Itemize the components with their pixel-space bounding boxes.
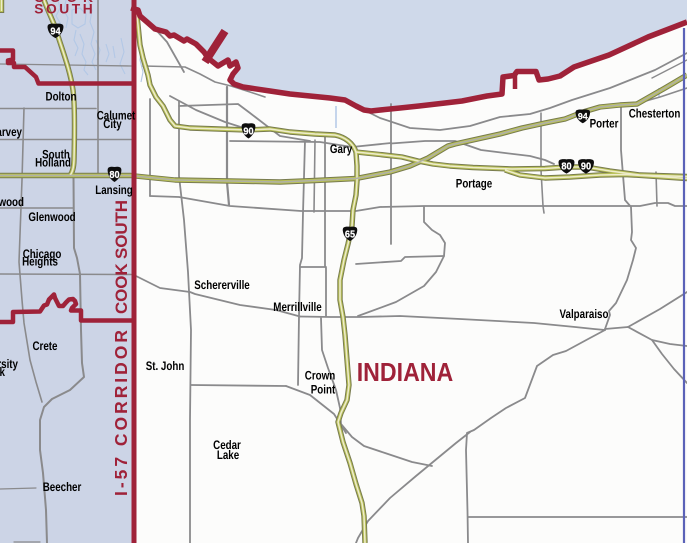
- svg-text:Homewood: Homewood: [0, 196, 24, 209]
- svg-text:Gary: Gary: [330, 143, 353, 156]
- svg-text:Harvey: Harvey: [0, 126, 23, 139]
- svg-text:90: 90: [581, 162, 592, 173]
- svg-text:Dolton: Dolton: [46, 91, 77, 104]
- svg-text:Crown: Crown: [305, 370, 336, 383]
- svg-text:Crete: Crete: [32, 340, 57, 353]
- svg-text:Valparaiso: Valparaiso: [560, 308, 609, 321]
- svg-text:Glenwood: Glenwood: [28, 211, 75, 224]
- svg-text:94: 94: [578, 111, 589, 122]
- svg-text:COOK SOUTH: COOK SOUTH: [112, 200, 131, 314]
- svg-text:Heights: Heights: [22, 256, 58, 269]
- svg-text:St. John: St. John: [146, 360, 185, 373]
- svg-text:80: 80: [561, 162, 572, 173]
- svg-text:Merrillville: Merrillville: [273, 301, 321, 314]
- svg-text:Holland: Holland: [35, 157, 71, 170]
- svg-text:Lansing: Lansing: [95, 184, 133, 197]
- svg-text:INDIANA: INDIANA: [357, 357, 454, 387]
- svg-text:Porter: Porter: [590, 118, 619, 131]
- svg-text:90: 90: [243, 126, 254, 137]
- svg-text:I-57 CORRIDOR: I-57 CORRIDOR: [111, 330, 131, 496]
- svg-text:Lake: Lake: [217, 449, 239, 462]
- svg-text:94: 94: [50, 26, 61, 37]
- svg-text:80: 80: [109, 170, 120, 181]
- svg-text:Portage: Portage: [456, 178, 492, 191]
- svg-text:Beecher: Beecher: [43, 481, 82, 494]
- svg-text:Schererville: Schererville: [194, 279, 249, 292]
- svg-text:Park: Park: [0, 366, 6, 379]
- svg-text:65: 65: [345, 229, 356, 240]
- svg-text:Chesterton: Chesterton: [629, 107, 681, 120]
- svg-text:Point: Point: [311, 384, 336, 397]
- svg-text:City: City: [103, 118, 122, 131]
